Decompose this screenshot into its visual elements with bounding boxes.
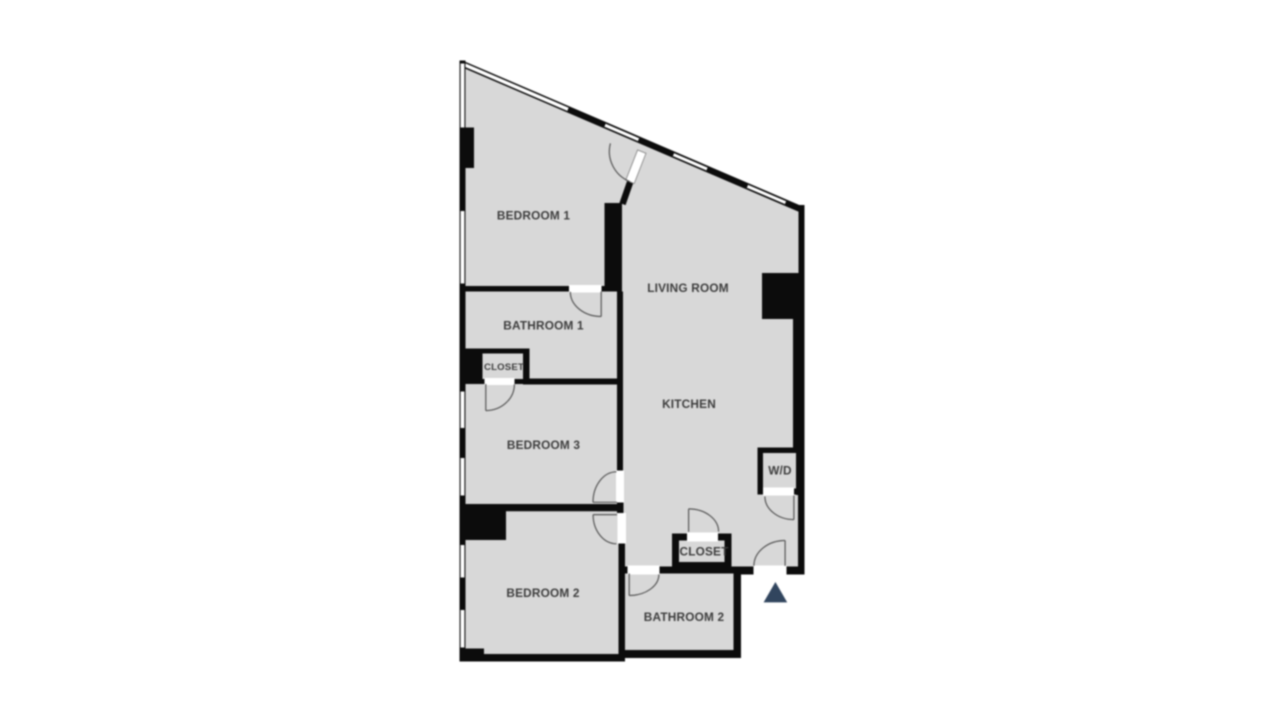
svg-text:CLOSET: CLOSET	[679, 544, 729, 558]
svg-text:BEDROOM 1: BEDROOM 1	[497, 208, 570, 222]
svg-text:LIVING ROOM: LIVING ROOM	[647, 281, 729, 295]
svg-text:W/D: W/D	[768, 463, 792, 477]
svg-text:BEDROOM 2: BEDROOM 2	[506, 586, 579, 600]
svg-text:BATHROOM 2: BATHROOM 2	[644, 610, 725, 624]
svg-text:KITCHEN: KITCHEN	[662, 397, 716, 411]
svg-text:BATHROOM 1: BATHROOM 1	[503, 318, 584, 332]
svg-text:BEDROOM 3: BEDROOM 3	[507, 438, 580, 452]
svg-text:CLOSET: CLOSET	[484, 362, 524, 373]
